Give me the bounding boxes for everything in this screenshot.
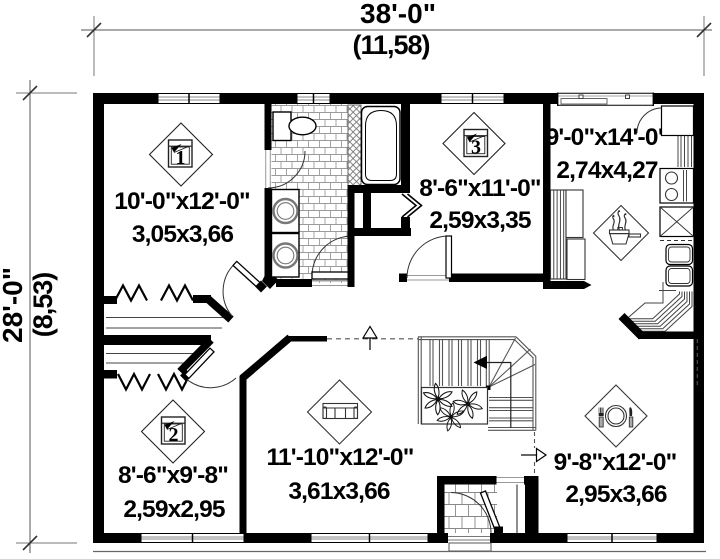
svg-text:2,59x2,95: 2,59x2,95: [123, 496, 225, 523]
svg-text:11'-10"x12'-0": 11'-10"x12'-0": [267, 444, 414, 471]
svg-text:(11,58): (11,58): [352, 30, 429, 60]
svg-text:2,59x3,35: 2,59x3,35: [429, 207, 531, 234]
svg-text:(8,53): (8,53): [28, 273, 58, 338]
svg-text:2,74x4,27: 2,74x4,27: [556, 157, 658, 184]
svg-text:8'-6"x11'-0": 8'-6"x11'-0": [419, 175, 540, 202]
svg-text:10'-0"x12'-0": 10'-0"x12'-0": [114, 188, 250, 215]
svg-text:3: 3: [471, 137, 481, 159]
svg-text:38'-0": 38'-0": [360, 0, 436, 29]
svg-text:9'-0"x14'-0": 9'-0"x14'-0": [546, 124, 669, 151]
svg-text:2,95x3,66: 2,95x3,66: [565, 481, 667, 508]
svg-text:8'-6"x9'-8": 8'-6"x9'-8": [118, 462, 228, 489]
svg-text:1: 1: [176, 147, 186, 169]
svg-text:28'-0": 28'-0": [0, 267, 28, 343]
svg-text:3,61x3,66: 3,61x3,66: [288, 478, 390, 505]
svg-text:3,05x3,66: 3,05x3,66: [132, 221, 234, 248]
svg-text:2: 2: [169, 424, 179, 446]
svg-text:9'-8"x12'-0": 9'-8"x12'-0": [554, 449, 677, 476]
